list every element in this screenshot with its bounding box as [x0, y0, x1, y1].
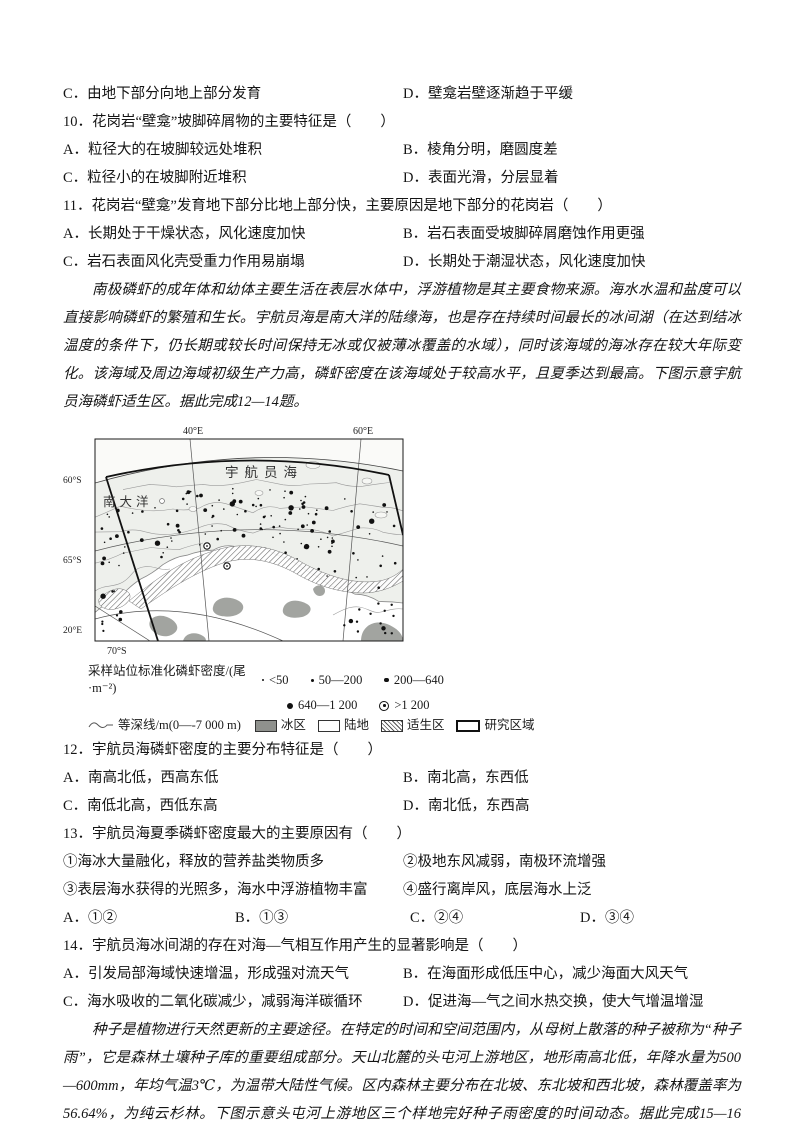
- q11-option-c: C．岩石表面风化壳受重力作用易崩塌: [63, 248, 403, 276]
- q12-options-cd: C．南低北高，西低东高 D．南北低，东西高: [63, 792, 741, 820]
- q14-option-b: B．在海面形成低压中心，减少海面大风天气: [403, 960, 741, 988]
- density-dot-3-icon: [384, 678, 389, 683]
- seed-rain-passage: 种子是植物进行天然更新的主要途径。在特定的时间和空间范围内，从母树上散落的种子被…: [63, 1016, 741, 1123]
- q14-stem: 14．宇航员海冰间湖的存在对海—气相互作用产生的显著影响是（ ）: [63, 932, 741, 960]
- isobath-legend: 等深线/m(0—-7 000 m): [88, 717, 241, 734]
- legend-density-row-2: 640—1 200 >1 200: [287, 697, 741, 714]
- q10-options-cd: C．粒径小的在坡脚附近堆积 D．表面光滑，分层显着: [63, 164, 741, 192]
- q13-answer-b: B．①③: [235, 904, 410, 932]
- legend-symbols-row: 等深线/m(0—-7 000 m) 冰区 陆地 适生区 研究区域: [88, 717, 741, 734]
- ice-legend: 冰区: [255, 717, 306, 734]
- q11-option-a: A．长期处于干燥状态，风化速度加快: [63, 220, 403, 248]
- q12-option-c: C．南低北高，西低东高: [63, 792, 403, 820]
- density-class-1: <50: [262, 672, 289, 689]
- q13-item-4: ④盛行离岸风，底层海水上泛: [403, 876, 741, 904]
- lon-60-label: 60°E: [353, 426, 373, 437]
- lat-60-label: 60°S: [63, 475, 82, 486]
- q10-option-a: A．粒径大的在坡脚较远处堆积: [63, 136, 403, 164]
- density-class-2: 50—200: [311, 672, 363, 689]
- q13-stem: 13．宇航员海夏季磷虾密度最大的主要原因有（ ）: [63, 820, 741, 848]
- density-class-4: 640—1 200: [287, 697, 357, 714]
- study-area-swatch-icon: [456, 720, 480, 732]
- q10-option-b: B．棱角分明，磨圆度差: [403, 136, 741, 164]
- exam-content: C．由地下部分向地上部分发育 D．壁龛岩壁逐渐趋于平缓 10．花岗岩“壁龛”坡脚…: [63, 80, 741, 1123]
- q14-option-d: D．促进海—气之间水热交换，使大气增温增湿: [403, 988, 741, 1016]
- q9-option-d: D．壁龛岩壁逐渐趋于平缓: [403, 80, 741, 108]
- q14-options-cd: C．海水吸收的二氧化碳减少，减弱海洋碳循环 D．促进海—气之间水热交换，使大气增…: [63, 988, 741, 1016]
- density-dot-2-icon: [311, 679, 314, 682]
- q10-option-d: D．表面光滑，分层显着: [403, 164, 741, 192]
- study-area-legend: 研究区域: [456, 717, 534, 734]
- q12-option-a: A．南高北低，西高东低: [63, 764, 403, 792]
- small-island-circle: [160, 499, 165, 504]
- q12-option-d: D．南北低，东西高: [403, 792, 741, 820]
- q11-options-ab: A．长期处于干燥状态，风化速度加快 B．岩石表面受坡脚碎屑磨蚀作用更强: [63, 220, 741, 248]
- legend-density-row: 采样站位标准化磷虾密度/(尾·m⁻²) <50 50—200 200—640: [88, 663, 741, 697]
- density-class-5-label: >1 200: [394, 697, 429, 714]
- q13-answers: A．①② B．①③ C．②④ D．③④: [63, 904, 741, 932]
- q11-options-cd: C．岩石表面风化壳受重力作用易崩塌 D．长期处于潮湿状态，风化速度加快: [63, 248, 741, 276]
- q14-options-ab: A．引发局部海域快速增温，形成强对流天气 B．在海面形成低压中心，减少海面大风天…: [63, 960, 741, 988]
- isobath-legend-label: 等深线/m(0—-7 000 m): [118, 717, 241, 734]
- density-class-1-label: <50: [269, 672, 289, 689]
- q11-stem: 11．花岗岩“壁龛”发育地下部分比地上部分快，主要原因是地下部分的花岗岩（ ）: [63, 192, 741, 220]
- density-class-4-label: 640—1 200: [298, 697, 357, 714]
- q14-option-a: A．引发局部海域快速增温，形成强对流天气: [63, 960, 403, 988]
- q13-answer-d: D．③④: [580, 904, 741, 932]
- krill-map: 宇航员海 南大洋 40°E 60°E 60°S 65°S 20°E 70°S: [63, 423, 411, 663]
- q10-option-c: C．粒径小的在坡脚附近堆积: [63, 164, 403, 192]
- q10-stem: 10．花岗岩“壁龛”坡脚碎屑物的主要特征是（ ）: [63, 108, 741, 136]
- q13-item-1: ①海冰大量融化，释放的营养盐类物质多: [63, 848, 403, 876]
- lon-40-label: 40°E: [183, 426, 203, 437]
- density-class-2-label: 50—200: [319, 672, 363, 689]
- land-legend-label: 陆地: [344, 717, 369, 734]
- q9-options-cd: C．由地下部分向地上部分发育 D．壁龛岩壁逐渐趋于平缓: [63, 80, 741, 108]
- q11-option-d: D．长期处于潮湿状态，风化速度加快: [403, 248, 741, 276]
- density-dot-4-icon: [287, 703, 293, 709]
- q13-items-12: ①海冰大量融化，释放的营养盐类物质多 ②极地东风减弱，南极环流增强: [63, 848, 741, 876]
- exam-page: C．由地下部分向地上部分发育 D．壁龛岩壁逐渐趋于平缓 10．花岗岩“壁龛”坡脚…: [0, 0, 794, 1123]
- suitable-legend: 适生区: [381, 717, 445, 734]
- q9-option-c: C．由地下部分向地上部分发育: [63, 80, 403, 108]
- krill-map-figure: 宇航员海 南大洋 40°E 60°E 60°S 65°S 20°E 70°S 采…: [63, 423, 741, 734]
- q14-option-c: C．海水吸收的二氧化碳减少，减弱海洋碳循环: [63, 988, 403, 1016]
- suitable-swatch-icon: [381, 720, 403, 732]
- density-class-3-label: 200—640: [394, 672, 444, 689]
- q13-item-3: ③表层海水获得的光照多，海水中浮游植物丰富: [63, 876, 403, 904]
- land-legend: 陆地: [318, 717, 369, 734]
- q12-stem: 12．宇航员海磷虾密度的主要分布特征是（ ）: [63, 736, 741, 764]
- q13-answer-c: C．②④: [410, 904, 580, 932]
- density-legend-label: 采样站位标准化磷虾密度/(尾·m⁻²): [88, 663, 262, 697]
- q13-items-34: ③表层海水获得的光照多，海水中浮游植物丰富 ④盛行离岸风，底层海水上泛: [63, 876, 741, 904]
- krill-passage: 南极磷虾的成年体和幼体主要生活在表层水体中，浮游植物是其主要食物来源。海水水温和…: [63, 276, 741, 416]
- q13-item-2: ②极地东风减弱，南极环流增强: [403, 848, 741, 876]
- suitable-legend-label: 适生区: [407, 717, 445, 734]
- q13-answer-a: A．①②: [63, 904, 235, 932]
- lat-70-label: 70°S: [107, 646, 127, 657]
- q12-options-ab: A．南高北低，西高东低 B．南北高，东西低: [63, 764, 741, 792]
- density-dot-1-icon: [262, 679, 264, 681]
- ocean-name-label: 南大洋: [103, 494, 153, 509]
- sea-name-label: 宇航员海: [225, 465, 303, 480]
- study-area-legend-label: 研究区域: [484, 717, 534, 734]
- q11-option-b: B．岩石表面受坡脚碎屑磨蚀作用更强: [403, 220, 741, 248]
- ice-swatch-icon: [255, 720, 277, 732]
- density-donut-icon: [379, 701, 389, 711]
- density-class-3: 200—640: [384, 672, 444, 689]
- land-swatch-icon: [318, 720, 340, 732]
- lon-20-label: 20°E: [63, 625, 82, 636]
- density-class-5: >1 200: [379, 697, 429, 714]
- q12-option-b: B．南北高，东西低: [403, 764, 741, 792]
- ice-legend-label: 冰区: [281, 717, 306, 734]
- map-legend: 采样站位标准化磷虾密度/(尾·m⁻²) <50 50—200 200—640 6…: [88, 663, 741, 734]
- q10-options-ab: A．粒径大的在坡脚较远处堆积 B．棱角分明，磨圆度差: [63, 136, 741, 164]
- lat-65-label: 65°S: [63, 555, 82, 566]
- isobath-wave-icon: [88, 721, 114, 731]
